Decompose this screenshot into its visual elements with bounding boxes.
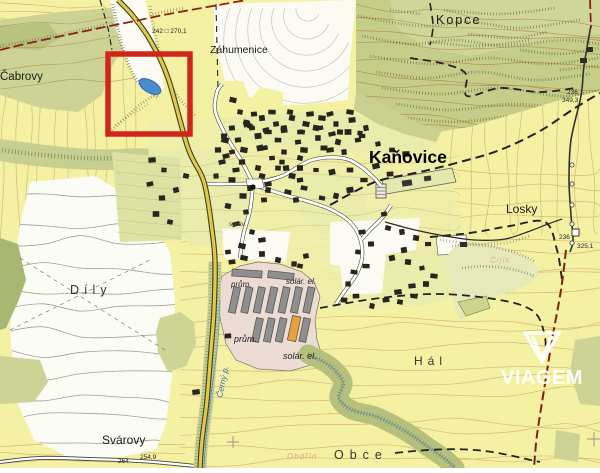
svg-text:264: 264 <box>118 458 129 465</box>
svg-text:prům.: prům. <box>233 334 257 344</box>
svg-text:Díly: Díly <box>70 283 112 297</box>
svg-text:Obce: Obce <box>334 448 388 462</box>
svg-text:solár. el.: solár. el. <box>286 277 316 286</box>
svg-text:prům.: prům. <box>230 280 251 289</box>
svg-text:Kaňovice: Kaňovice <box>369 147 447 167</box>
svg-text:VIAGEM: VIAGEM <box>501 367 583 389</box>
svg-text:325,1: 325,1 <box>577 243 594 250</box>
svg-text:Čabrovy: Čabrovy <box>0 70 43 83</box>
svg-text:Čijík: Čijík <box>490 256 511 265</box>
svg-text:správ.: správ. <box>229 221 246 228</box>
svg-text:Svárovy: Svárovy <box>102 433 145 447</box>
svg-text:236: 236 <box>559 234 570 241</box>
svg-text:Kopce: Kopce <box>436 13 481 27</box>
svg-text:254,9: 254,9 <box>140 454 157 461</box>
svg-text:Záhumenice: Záhumenice <box>210 44 268 56</box>
svg-text:solár. el.: solár. el. <box>283 351 317 361</box>
svg-text:Hál: Hál <box>414 354 447 368</box>
svg-text:349,3: 349,3 <box>562 97 579 104</box>
svg-text:242 □ 270,1: 242 □ 270,1 <box>152 28 187 35</box>
svg-text:Losky: Losky <box>506 202 537 216</box>
svg-text:236: 236 <box>567 89 578 96</box>
svg-text:Obdřín: Obdřín <box>287 452 317 461</box>
